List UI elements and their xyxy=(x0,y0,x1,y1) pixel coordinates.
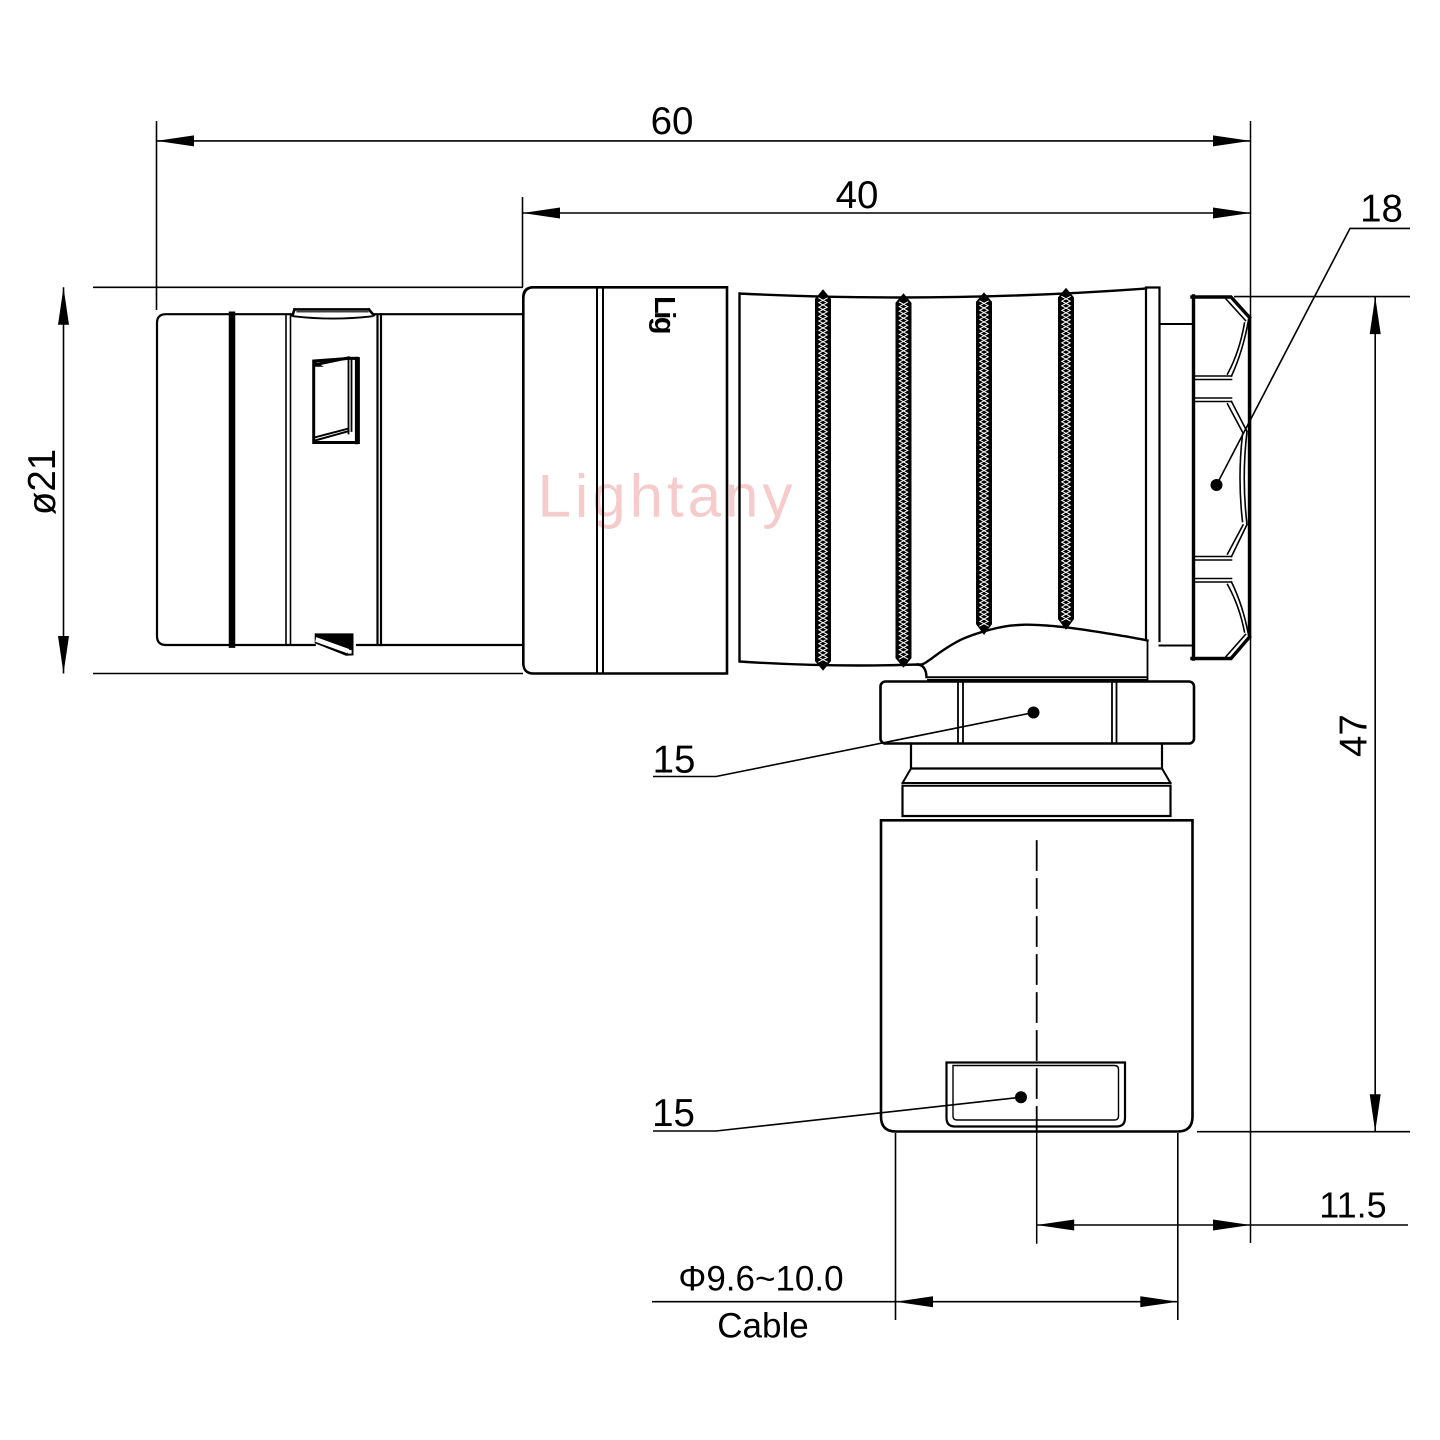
svg-text:Φ9.6~10.0: Φ9.6~10.0 xyxy=(678,1260,843,1299)
svg-text:Cable: Cable xyxy=(717,1307,808,1346)
svg-text:47: 47 xyxy=(1333,714,1376,757)
svg-text:15: 15 xyxy=(653,738,696,781)
svg-text:40: 40 xyxy=(836,174,879,217)
svg-text:15: 15 xyxy=(652,1092,695,1135)
svg-text:11.5: 11.5 xyxy=(1319,1185,1386,1226)
svg-text:60: 60 xyxy=(651,100,694,143)
svg-text:ø21: ø21 xyxy=(21,449,64,515)
svg-text:Lightany: Lightany xyxy=(538,463,797,530)
svg-text:18: 18 xyxy=(1360,188,1403,231)
svg-text:Lig: Lig xyxy=(648,296,680,333)
